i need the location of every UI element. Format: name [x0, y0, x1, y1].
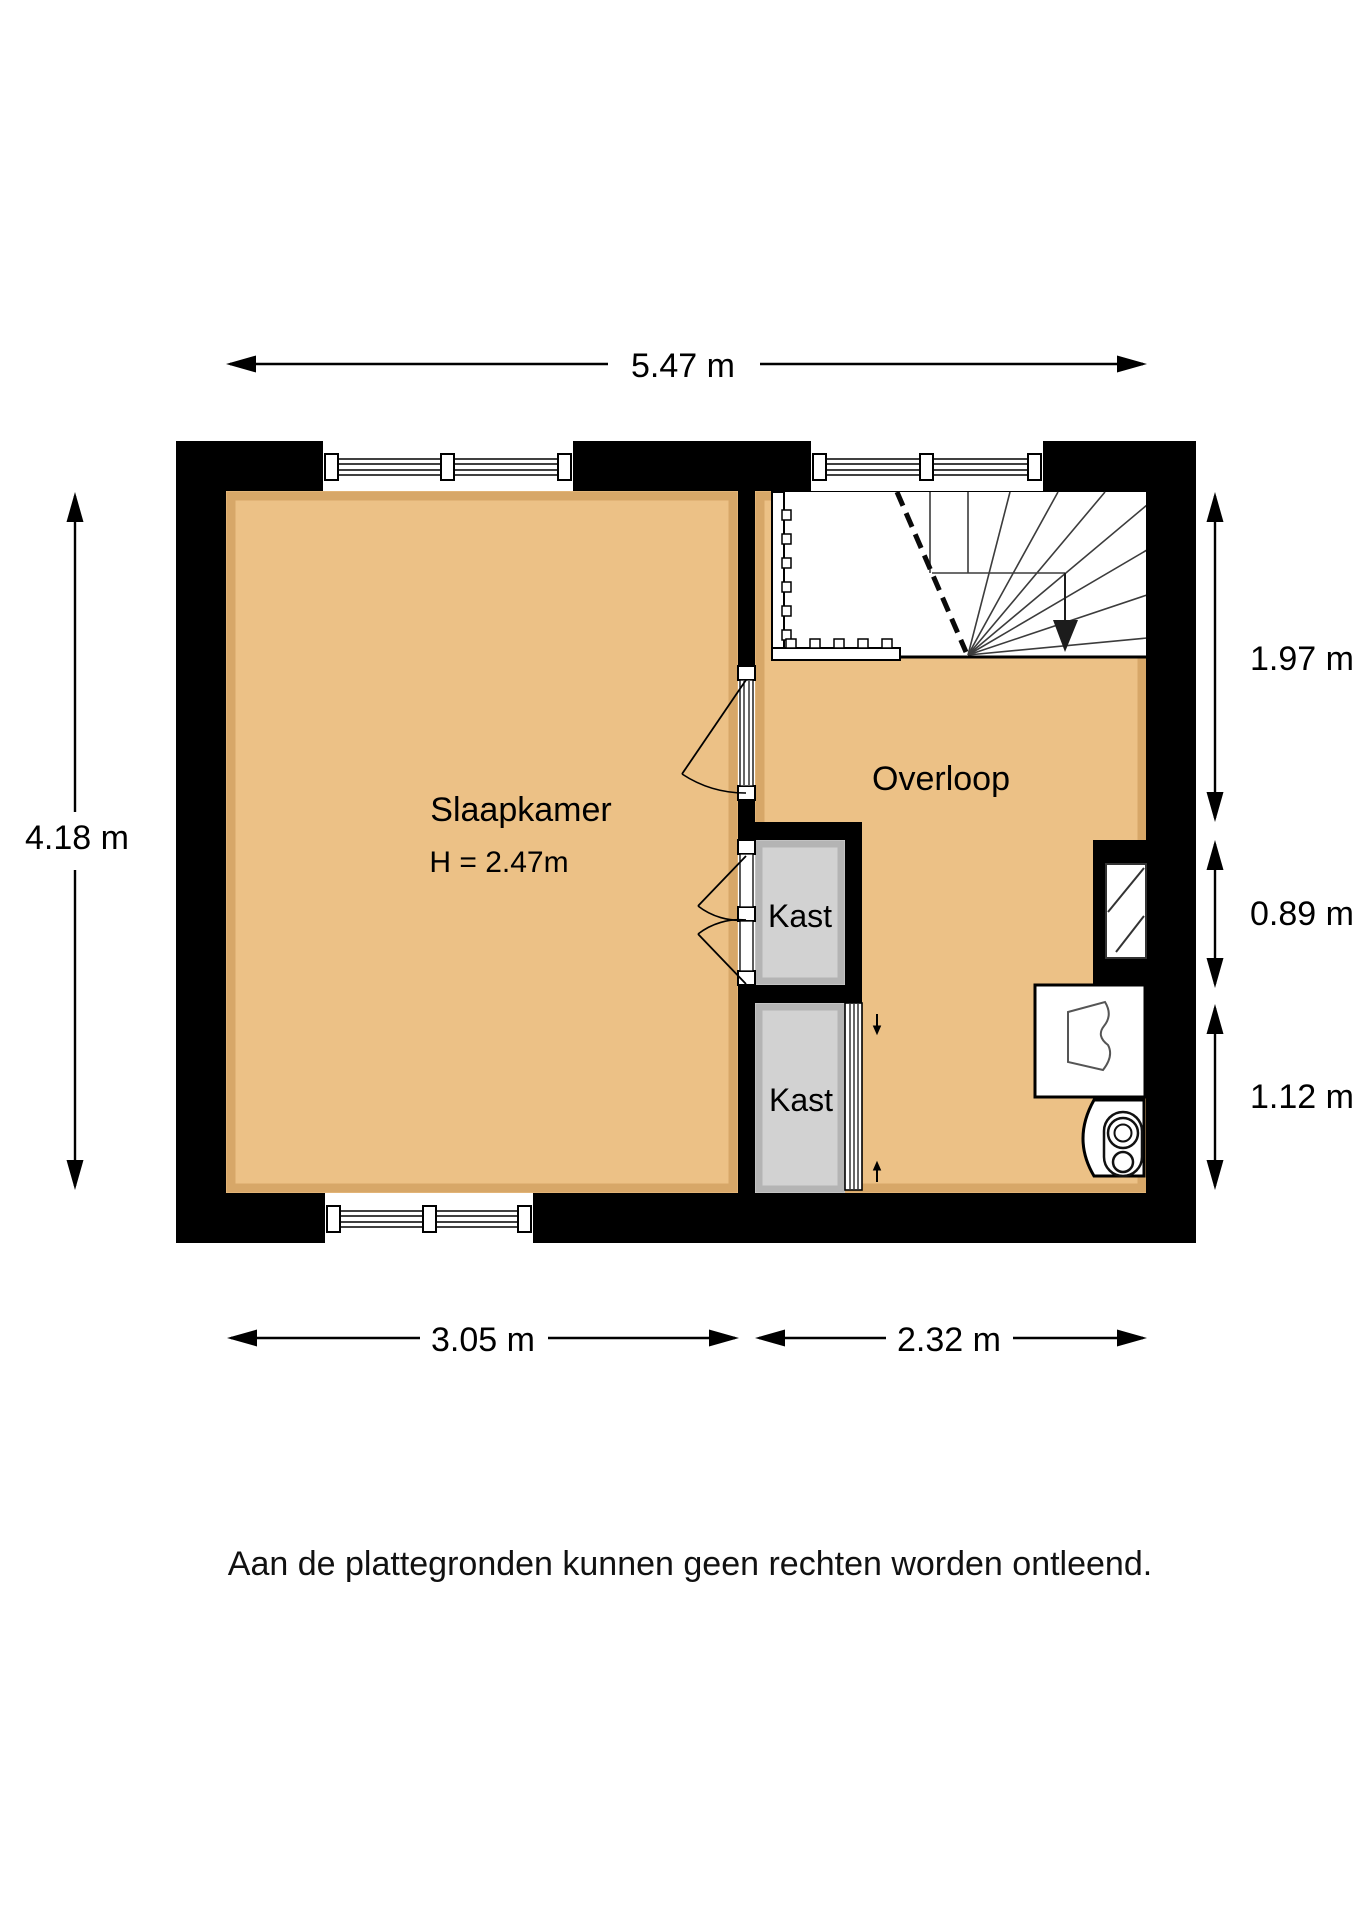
- closets: [755, 840, 845, 1193]
- stair-well: [772, 491, 1147, 657]
- room-height-label: H = 2.47m: [429, 846, 568, 879]
- balustrade-tooth: [782, 582, 791, 592]
- room-label-overloop: Overloop: [872, 760, 1010, 798]
- door-post: [738, 840, 755, 854]
- wall-right: [1146, 441, 1196, 1243]
- washbasin-icon: [1035, 985, 1145, 1097]
- dimension-label-right-middle: 0.89 m: [1250, 895, 1354, 933]
- dimension-label-total-height: 4.18 m: [25, 819, 129, 857]
- room-label-kast-top: Kast: [768, 898, 832, 934]
- floorplan-drawing: Slaapkamer H = 2.47m Overloop Kast Kast …: [0, 0, 1358, 1920]
- balustrade-tooth: [782, 534, 791, 544]
- balustrade-tooth: [882, 639, 892, 648]
- door-frame: [740, 854, 753, 907]
- door-frame: [740, 680, 753, 786]
- door-frame: [740, 921, 753, 971]
- room-label-slaapkamer: Slaapkamer: [430, 791, 611, 829]
- wall-divider-segment: [738, 1003, 755, 1193]
- balustrade-tooth: [810, 639, 820, 648]
- boiler-panel: [1104, 1112, 1142, 1176]
- wall-closet-right: [845, 840, 862, 1003]
- balustrade-tooth: [786, 639, 796, 648]
- slaapkamer-floor: [226, 491, 738, 1193]
- balustrade-rail: [772, 648, 900, 660]
- boiler-icon: [1083, 1100, 1144, 1176]
- wall-top-segment: [176, 441, 323, 491]
- window-icon: [811, 441, 1043, 491]
- niche-window-icon: [1106, 864, 1146, 958]
- balustrade-tooth: [782, 558, 791, 568]
- wall-closet-middle: [738, 985, 862, 1003]
- wall-divider-segment: [738, 491, 755, 666]
- window-icon: [325, 1193, 533, 1243]
- dimension-label-right-bottom: 1.12 m: [1250, 1078, 1354, 1116]
- dimension-label-bottom-right: 2.32 m: [897, 1321, 1001, 1359]
- room-label-kast-bottom: Kast: [769, 1082, 833, 1118]
- disclaimer-text: Aan de plattegronden kunnen geen rechten…: [228, 1545, 1152, 1583]
- door-post: [738, 666, 755, 680]
- balustrade-tooth: [782, 606, 791, 616]
- wall-divider-segment: [738, 800, 755, 822]
- wall-left: [176, 441, 226, 1243]
- wall-closet-top: [738, 822, 862, 840]
- floorplan-page: Slaapkamer H = 2.47m Overloop Kast Kast …: [0, 0, 1358, 1920]
- wall-top-segment: [1043, 441, 1196, 491]
- dimension-label-right-top: 1.97 m: [1250, 640, 1354, 678]
- balustrade-tooth: [782, 510, 791, 520]
- wall-bottom-segment: [533, 1193, 1196, 1243]
- dimension-label-total-width: 5.47 m: [631, 347, 735, 385]
- balustrade-tooth: [858, 639, 868, 648]
- dimension-label-bottom-left: 3.05 m: [431, 1321, 535, 1359]
- niche-window-pane: [1106, 864, 1146, 958]
- staircase: [772, 491, 1147, 660]
- window-icon: [323, 441, 573, 491]
- wall-bottom-segment: [176, 1193, 325, 1243]
- wall-top-segment: [573, 441, 811, 491]
- balustrade-tooth: [834, 639, 844, 648]
